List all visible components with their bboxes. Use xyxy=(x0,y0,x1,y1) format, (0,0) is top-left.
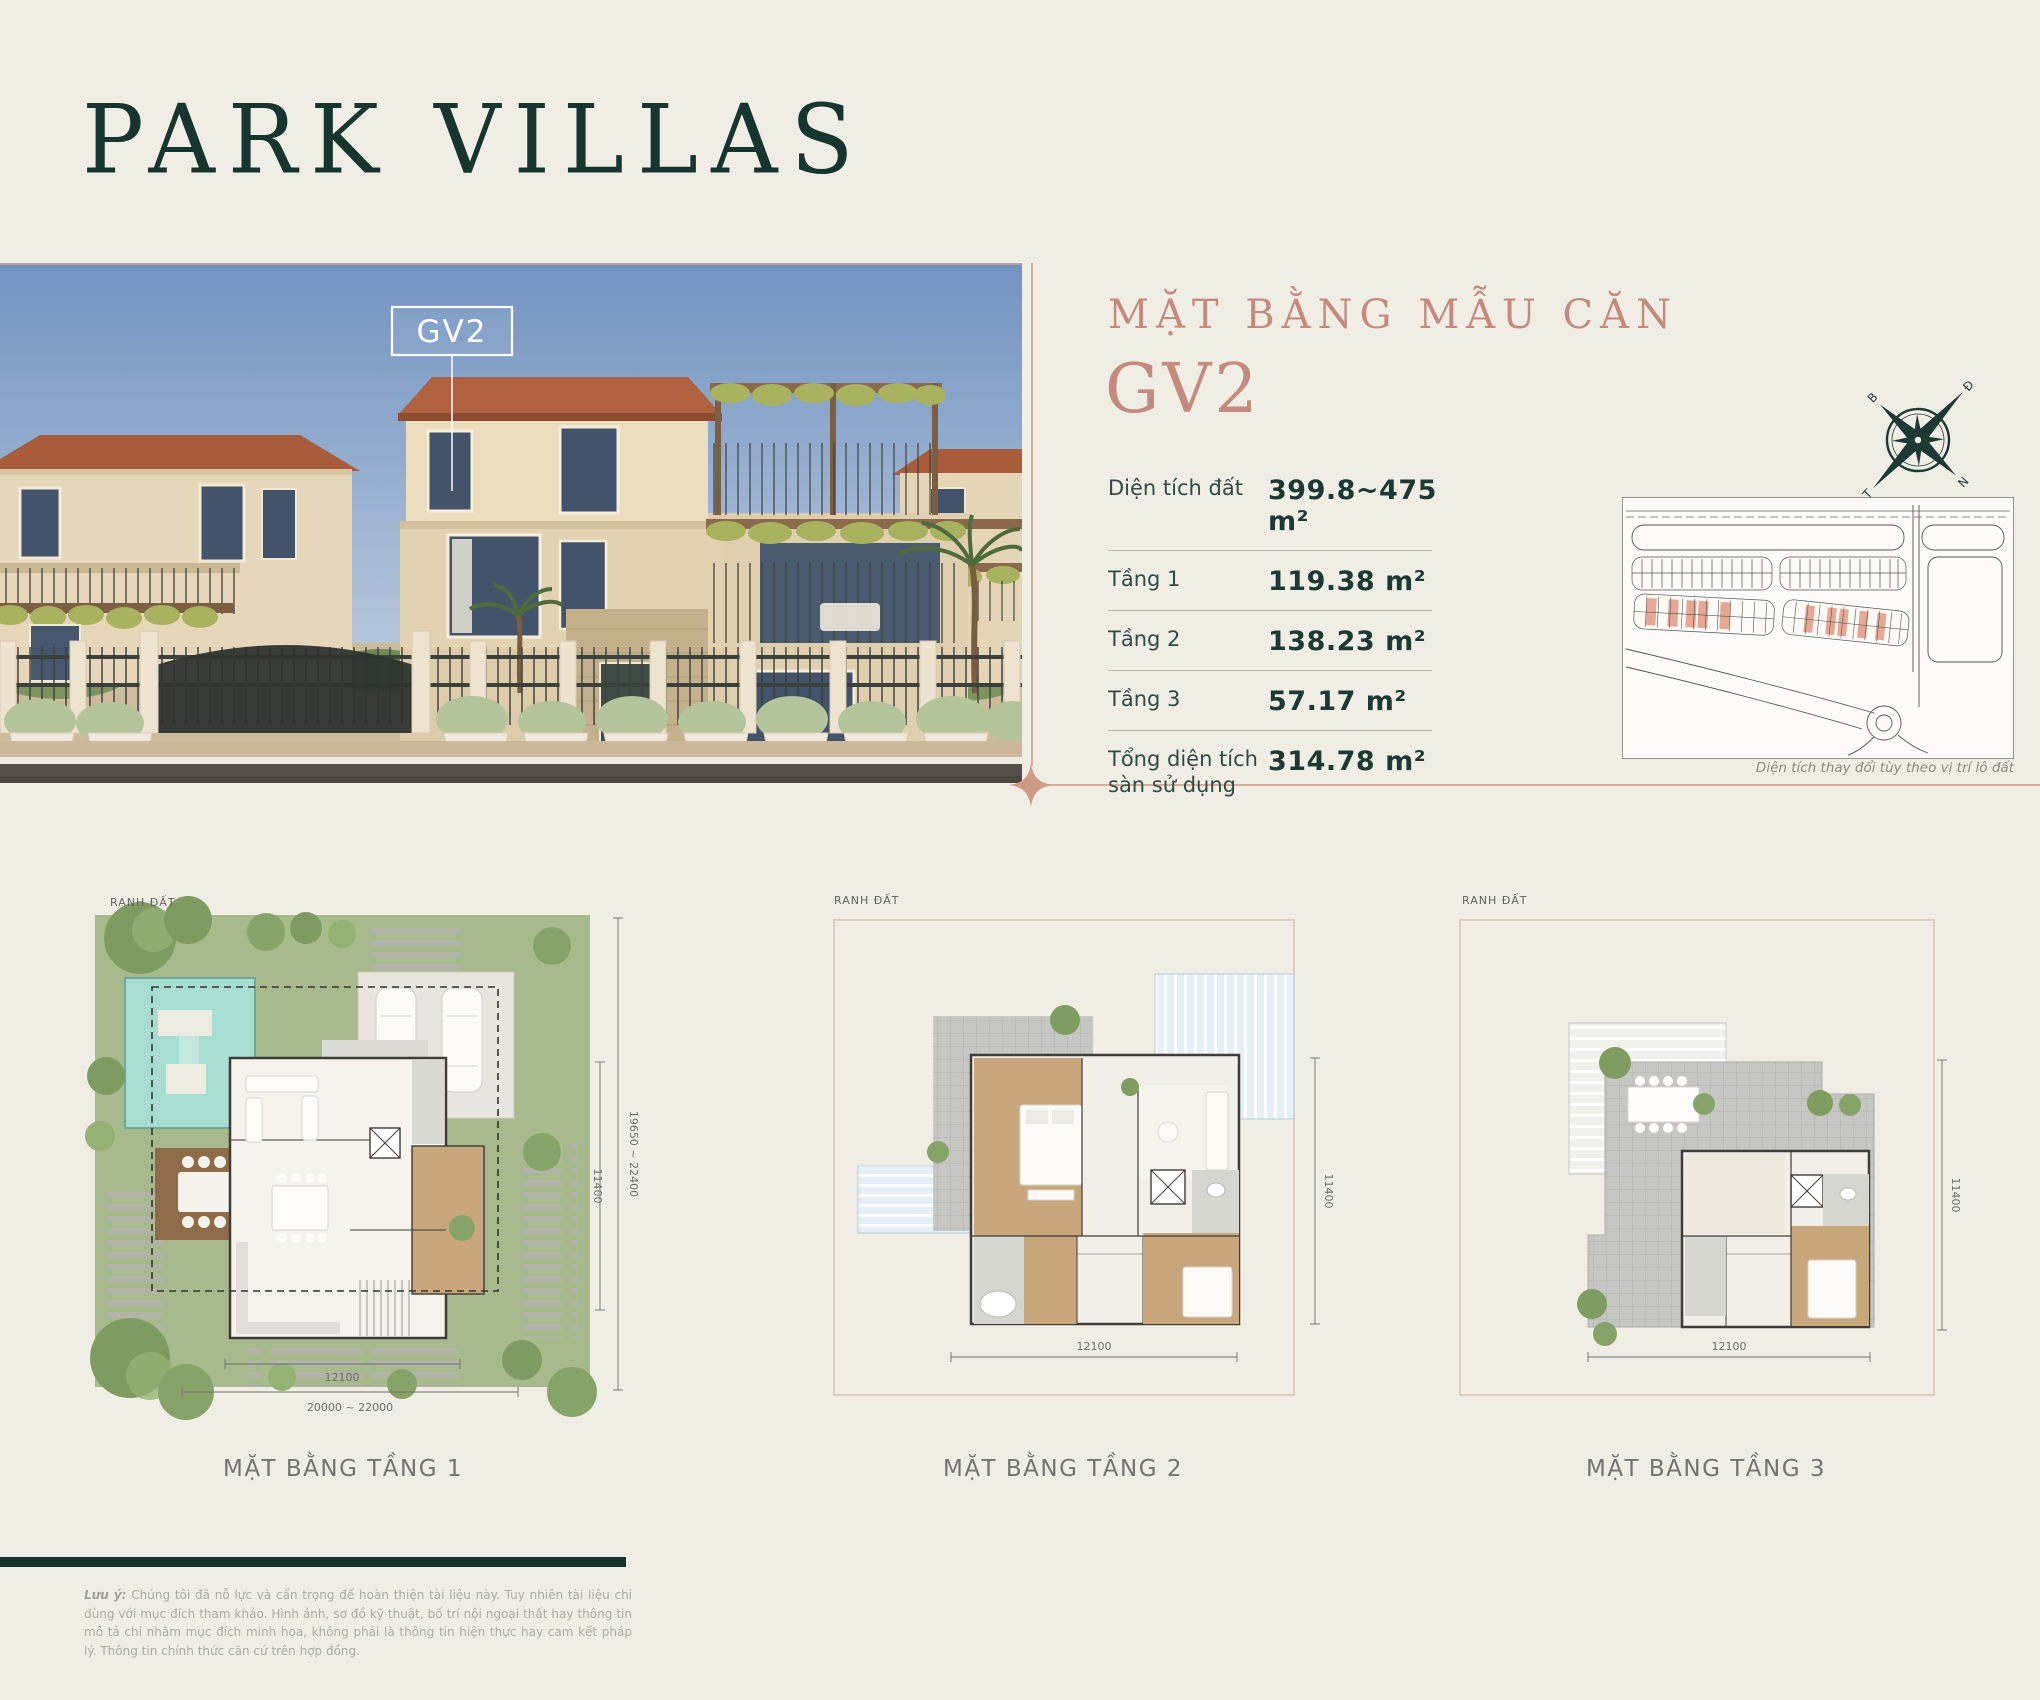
footer-accent-bar xyxy=(0,1557,626,1567)
stairs xyxy=(1077,1236,1143,1324)
site-location-map xyxy=(1622,497,2014,759)
dim-height: 11400 xyxy=(1322,1174,1335,1209)
spec-label: Tổng diện tích sàn sử dụng xyxy=(1108,746,1268,799)
page-title: PARK VILLAS xyxy=(82,84,867,195)
floorplan-level2: RANH ĐẤT xyxy=(820,890,1365,1410)
stairs xyxy=(1726,1236,1791,1327)
bathroom xyxy=(1192,1170,1239,1234)
spec-value: 399.8~475 m² xyxy=(1268,475,1437,537)
compass-rose-icon: B Đ N T xyxy=(1836,370,1996,512)
dim-width: 12100 xyxy=(1712,1340,1747,1353)
spec-value: 57.17 m² xyxy=(1268,686,1432,717)
spec-value: 119.38 m² xyxy=(1268,566,1432,597)
floorplan-caption-3: MẶT BẰNG TẦNG 3 xyxy=(1496,1456,1916,1482)
spec-row: Tầng 3 57.17 m² xyxy=(1108,671,1432,731)
house-footprint xyxy=(971,1055,1239,1324)
boundary-label: RANH ĐẤT xyxy=(834,893,900,907)
dim-width: 12100 xyxy=(1077,1340,1112,1353)
brochure-page: PARK VILLAS xyxy=(0,0,2040,1700)
divider-vertical xyxy=(1031,263,1033,766)
spec-value: 314.78 m² xyxy=(1268,746,1432,777)
dim-lot-depth: 19650 ~ 22400 xyxy=(627,1111,640,1197)
bathroom xyxy=(1685,1236,1726,1316)
dim-house-depth: 11400 xyxy=(591,1169,604,1204)
unit-callout-label: GV2 xyxy=(417,314,488,350)
boundary-label: RANH ĐẤT xyxy=(110,895,176,909)
compass-south-label: N xyxy=(1955,474,1971,490)
spec-row: Tầng 2 138.23 m² xyxy=(1108,611,1432,671)
spec-row: Diện tích đất 399.8~475 m² xyxy=(1108,460,1432,551)
boundary-label: RANH ĐẤT xyxy=(1462,893,1528,907)
dim-height: 11400 xyxy=(1949,1178,1962,1213)
house-core xyxy=(1682,1151,1869,1327)
spec-label: Diện tích đất xyxy=(1108,475,1268,501)
compass-north-label: B xyxy=(1865,390,1881,406)
bathroom xyxy=(1823,1174,1869,1230)
panel-unit-code: GV2 xyxy=(1105,350,1261,429)
spec-table: Diện tích đất 399.8~475 m² Tầng 1 119.38… xyxy=(1108,460,1432,812)
sidewalk xyxy=(0,741,1022,759)
disclaimer-label: Lưu ý: xyxy=(84,1588,126,1602)
floorplan-caption-1: MẶT BẰNG TẦNG 1 xyxy=(133,1456,553,1482)
villa-photo-illustration: GV2 xyxy=(0,263,1022,783)
dim-lot-width: 20000 ~ 22000 xyxy=(307,1401,393,1414)
dim-house-width: 12100 xyxy=(325,1371,360,1384)
compass-east-label: Đ xyxy=(1960,378,1977,394)
star-ornament xyxy=(1008,762,1054,808)
disclaimer-text: Chúng tôi đã nỗ lực và cẩn trọng để hoàn… xyxy=(84,1588,632,1658)
spec-label: Tầng 2 xyxy=(1108,626,1268,652)
spec-value: 138.23 m² xyxy=(1268,626,1432,657)
stairs xyxy=(356,1280,410,1336)
entrance-gate xyxy=(156,645,414,733)
house-footprint xyxy=(230,1040,484,1338)
floorplan-level1: RANH ĐẤT 19650 ~ 22400 11400 12100 20000… xyxy=(70,890,640,1450)
floorplan-level3: RANH ĐẤT xyxy=(1450,890,1995,1410)
spec-label: Tầng 1 xyxy=(1108,566,1268,592)
spec-row: Tổng diện tích sàn sử dụng 314.78 m² xyxy=(1108,731,1432,812)
sitemap-caption: Diện tích thay đổi tùy theo vị trí lô đấ… xyxy=(1622,760,2014,776)
panel-heading: MẶT BẰNG MẪU CĂN xyxy=(1108,292,1678,338)
disclaimer: Lưu ý: Chúng tôi đã nỗ lực và cẩn trọng … xyxy=(84,1586,632,1660)
floorplan-caption-2: MẶT BẰNG TẦNG 2 xyxy=(853,1456,1273,1482)
spec-label: Tầng 3 xyxy=(1108,686,1268,712)
spec-row: Tầng 1 119.38 m² xyxy=(1108,551,1432,611)
villa-photo: GV2 xyxy=(0,263,1022,783)
